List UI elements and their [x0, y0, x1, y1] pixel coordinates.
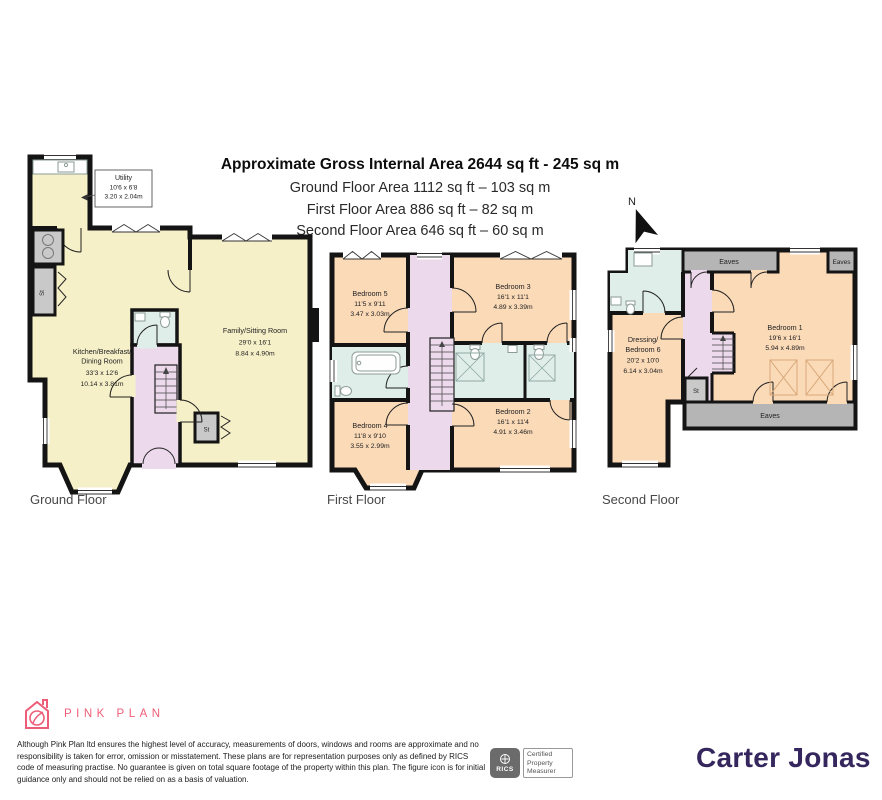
- kitchen-imperial: 33'3 x 12'6: [86, 370, 119, 377]
- certified-line1: Certified: [527, 751, 569, 760]
- pink-plan-house-icon: [20, 697, 54, 731]
- family-name: Family/Sitting Room: [223, 326, 287, 335]
- pink-plan-wordmark: PINK PLAN: [64, 708, 165, 720]
- ground-floor-caption: Ground Floor: [30, 492, 107, 507]
- bedroom3-name: Bedroom 3: [495, 282, 530, 291]
- bedroom5-name: Bedroom 5: [352, 289, 387, 298]
- bedroom2-name: Bedroom 2: [495, 407, 530, 416]
- certified-line2: Property: [527, 760, 569, 769]
- rics-badge: RICS: [490, 748, 520, 778]
- bedroom4-imperial: 11'8 x 9'10: [354, 433, 386, 440]
- utility-metric: 3.20 x 2.04m: [104, 194, 143, 201]
- utility-name: Utility: [115, 175, 133, 182]
- bedroom3-metric: 4.89 x 3.39m: [493, 304, 533, 311]
- bedroom2-metric: 4.91 x 3.46m: [493, 429, 533, 436]
- rics-certification: RICS Certified Property Measurer: [490, 748, 573, 778]
- ground-floor-plan: Utility 10'6 x 6'8 3.20 x 2.04m Kitchen/…: [22, 150, 322, 495]
- certified-line3: Measurer: [527, 768, 569, 777]
- store-left-label: St: [40, 290, 46, 296]
- bedroom1-imperial: 19'6 x 16'1: [769, 335, 802, 342]
- first-ensuite-b: [525, 343, 574, 400]
- bedroom4-metric: 3.55 x 2.99m: [350, 443, 390, 450]
- disclaimer-text: Although Pink Plan ltd ensures the highe…: [17, 739, 487, 785]
- bedroom5-imperial: 11'5 x 9'11: [354, 301, 386, 308]
- rics-label: RICS: [496, 766, 514, 773]
- kitchen-name-1: Kitchen/Breakfast/: [73, 347, 131, 356]
- bedroom6-imperial: 20'2 x 10'0: [627, 358, 660, 365]
- bedroom6-metric: 6.14 x 3.04m: [623, 368, 663, 375]
- front-door-gap: [142, 460, 176, 469]
- pink-plan-logo: PINK PLAN: [20, 697, 165, 731]
- first-floor-caption: First Floor: [327, 492, 386, 507]
- carter-jonas-logo: Carter Jonas: [696, 742, 871, 774]
- kitchen-name-2: Dining Room: [81, 357, 123, 366]
- north-arrow-shape: [625, 205, 658, 243]
- first-floor-plan: Bedroom 5 11'5 x 9'11 3.47 x 3.03m Bedro…: [322, 248, 584, 493]
- family-imperial: 29'0 x 16'1: [239, 340, 272, 347]
- utility-imperial: 10'6 x 6'8: [110, 185, 138, 192]
- compass-n-label: N: [628, 196, 636, 208]
- rics-crest-icon: [498, 753, 512, 765]
- second-store-label: St: [693, 389, 699, 395]
- bedroom6-name-1: Dressing/: [628, 335, 658, 344]
- second-floor-caption: Second Floor: [602, 492, 679, 507]
- second-floor-plan: Eaves Eaves Eaves Bedroom 1 19'6 x 16'1 …: [598, 245, 860, 475]
- north-arrow-icon: N: [616, 190, 668, 246]
- bedroom3-imperial: 16'1 x 11'1: [497, 294, 529, 301]
- bedroom5-metric: 3.47 x 3.03m: [350, 311, 390, 318]
- eaves-top-label: Eaves: [719, 259, 739, 266]
- eaves-corner-label: Eaves: [832, 259, 851, 266]
- bedroom6-name-2: Bedroom 6: [625, 345, 660, 354]
- bedroom1-metric: 5.94 x 4.89m: [765, 345, 805, 352]
- eaves-bottom-label: Eaves: [760, 413, 780, 420]
- store-hall-label: St: [204, 428, 210, 434]
- kitchen-metric: 10.14 x 3.81m: [80, 381, 123, 388]
- bedroom1-name: Bedroom 1: [767, 323, 802, 332]
- bedroom4-name: Bedroom 4: [352, 421, 387, 430]
- family-metric: 8.84 x 4.90m: [235, 351, 275, 358]
- bedroom2-imperial: 16'1 x 11'4: [497, 419, 529, 426]
- certified-measurer-box: Certified Property Measurer: [523, 748, 573, 778]
- floorplan-page: Approximate Gross Internal Area 2644 sq …: [0, 0, 882, 800]
